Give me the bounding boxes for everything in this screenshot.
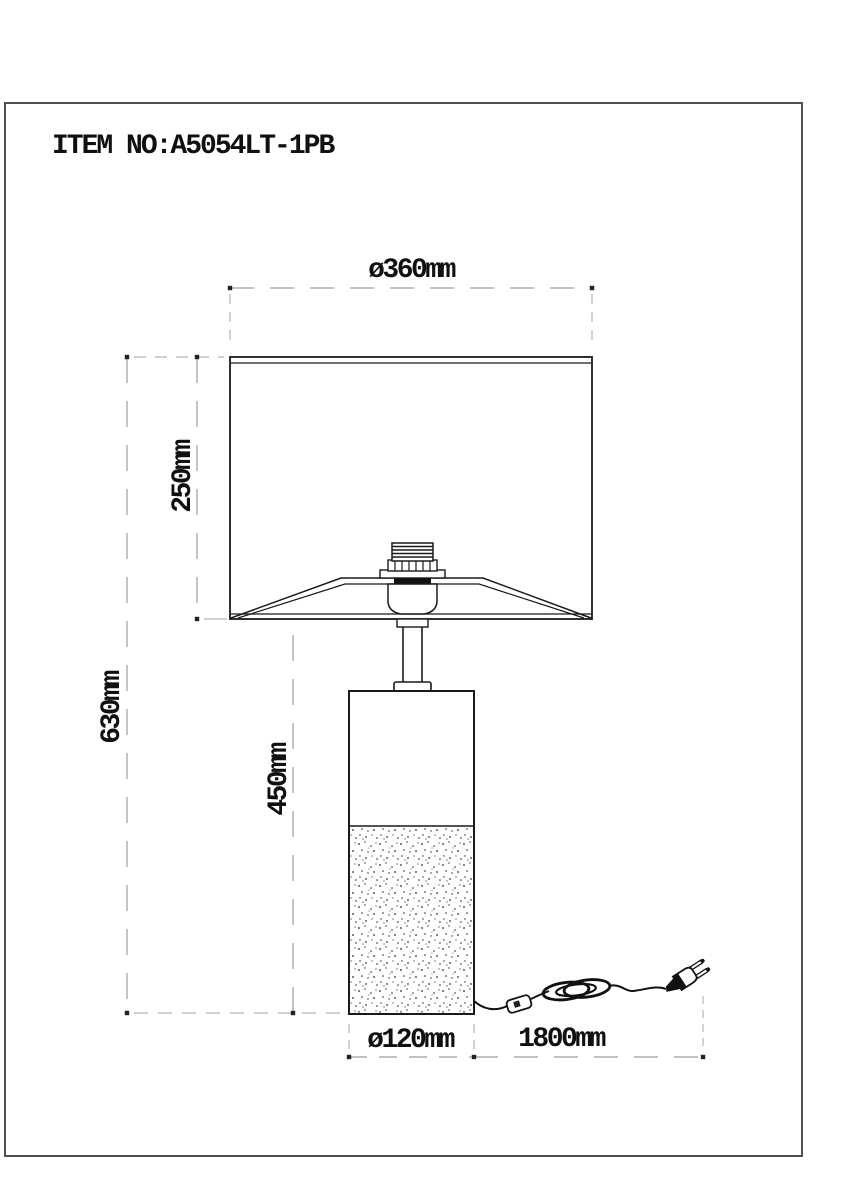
dim-base-diameter: ø120mm: [367, 1027, 453, 1055]
socket-cup: [388, 584, 437, 614]
power-plug: [662, 957, 711, 997]
drawing-page: ITEM NO:A5054LT-1PB ø360mm 250mm 630mm 4…: [0, 0, 848, 1200]
cord-knot: [542, 977, 611, 1002]
item-number: ITEM NO:A5054LT-1PB: [52, 133, 333, 161]
lamp-body: [349, 691, 474, 1014]
socket-thread-band: [394, 578, 431, 584]
socket-thread-cap: [392, 543, 433, 561]
lamp-stem: [403, 627, 422, 682]
dim-total-height: 630mm: [99, 672, 127, 744]
stem-collar: [397, 619, 428, 627]
dim-shade-height: 250mm: [170, 441, 198, 513]
cord-switch: [506, 994, 533, 1013]
plug-prong-bottom: [696, 969, 708, 978]
dim-body-height: 450mm: [266, 744, 294, 816]
lamp-technical-drawing: [0, 0, 848, 1200]
power-cord: [474, 977, 666, 1013]
plug-prong-top: [690, 960, 702, 969]
granite-texture: [351, 828, 473, 1013]
dim-cord-length: 1800mm: [518, 1026, 604, 1054]
dim-shade-diameter: ø360mm: [368, 257, 454, 285]
stem-flare: [394, 682, 431, 691]
